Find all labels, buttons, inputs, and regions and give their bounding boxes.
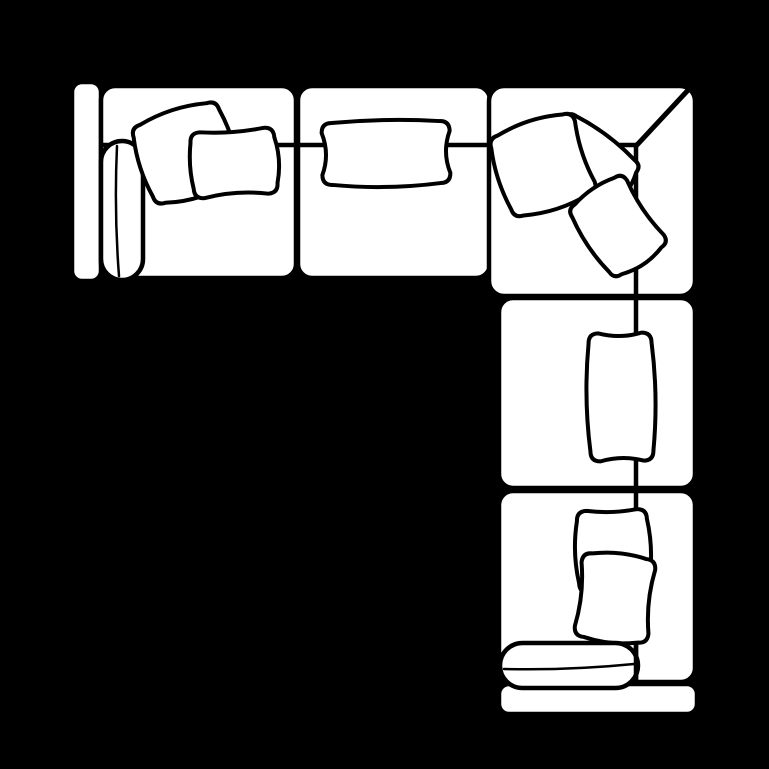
- throw-pillow-left-front: [188, 127, 281, 199]
- lumbar-pillow-right: [585, 332, 656, 461]
- sectional-sofa-plan-drawing: [0, 0, 769, 769]
- throw-pillow-bottom-front: [573, 549, 656, 646]
- sofa-floorplan-stage: [0, 0, 769, 769]
- left-armrest: [72, 82, 101, 281]
- lumbar-pillow-middle: [321, 119, 450, 188]
